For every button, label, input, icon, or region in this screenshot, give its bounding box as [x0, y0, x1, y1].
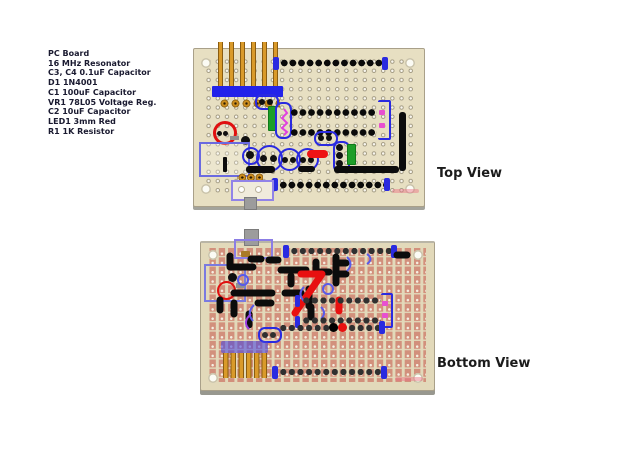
- socket-end-cap: [384, 178, 390, 191]
- connector-tab: [244, 197, 257, 210]
- jumper-wire: [298, 166, 315, 172]
- bottom-pin-row: [278, 180, 385, 190]
- pin1-mark: [379, 123, 385, 128]
- pcb-top-view: [193, 48, 425, 207]
- top-pin-row: [279, 58, 387, 68]
- ic-socket-row: [289, 108, 377, 117]
- pcb-bottom-view: [200, 241, 435, 391]
- jumper-wire: [399, 112, 406, 171]
- socket-end-cap: [382, 57, 388, 70]
- black-joint: [329, 323, 338, 332]
- mounting-hole: [201, 58, 211, 68]
- socket-bracket: [378, 100, 391, 140]
- socket-end-cap: [295, 295, 300, 307]
- gray-lead: [230, 136, 239, 140]
- pin1-mark: [382, 301, 388, 306]
- header-body-through: [221, 341, 268, 353]
- socket-end-cap: [381, 366, 387, 379]
- parts-list-item: R1 1K Resistor: [48, 127, 156, 137]
- mounting-hole: [201, 184, 211, 194]
- parts-list-item: PC Board: [48, 49, 156, 59]
- parts-list-item: C2 10uF Capacitor: [48, 107, 156, 117]
- parts-list: PC Board 16 MHz Resonator C3, C4 0.1uF C…: [48, 49, 156, 136]
- parts-list-item: LED1 3mm Red: [48, 117, 156, 127]
- red-joint: [338, 323, 347, 332]
- page: PC Board 16 MHz Resonator C3, C4 0.1uF C…: [0, 0, 620, 465]
- socket-end-cap: [379, 321, 385, 334]
- resistor-r1: [307, 150, 328, 158]
- thin-blue-traces: [238, 254, 371, 321]
- jumper-wire: [246, 166, 275, 173]
- ic-socket-row: [301, 296, 381, 305]
- parts-list-item: C1 100uF Capacitor: [48, 88, 156, 98]
- pin1-mark: [382, 313, 388, 318]
- pin1-mark: [379, 110, 385, 115]
- watermark: [392, 189, 419, 193]
- bottom-view-label: Bottom View: [437, 356, 530, 371]
- jumper-wire: [334, 166, 399, 173]
- watermark: [395, 377, 423, 381]
- parts-list-item: 16 MHz Resonator: [48, 59, 156, 69]
- top-view-label: Top View: [437, 166, 502, 181]
- parts-list-item: D1 1N4001: [48, 78, 156, 88]
- bottom-solder-row: [278, 367, 383, 377]
- parts-list-item: VR1 78L05 Voltage Reg.: [48, 98, 156, 108]
- mounting-hole: [405, 58, 415, 68]
- green-capacitor: [347, 144, 356, 165]
- header-pins-through: [223, 353, 269, 378]
- header-pins: [218, 42, 279, 89]
- parts-list-item: C3, C4 0.1uF Capacitor: [48, 68, 156, 78]
